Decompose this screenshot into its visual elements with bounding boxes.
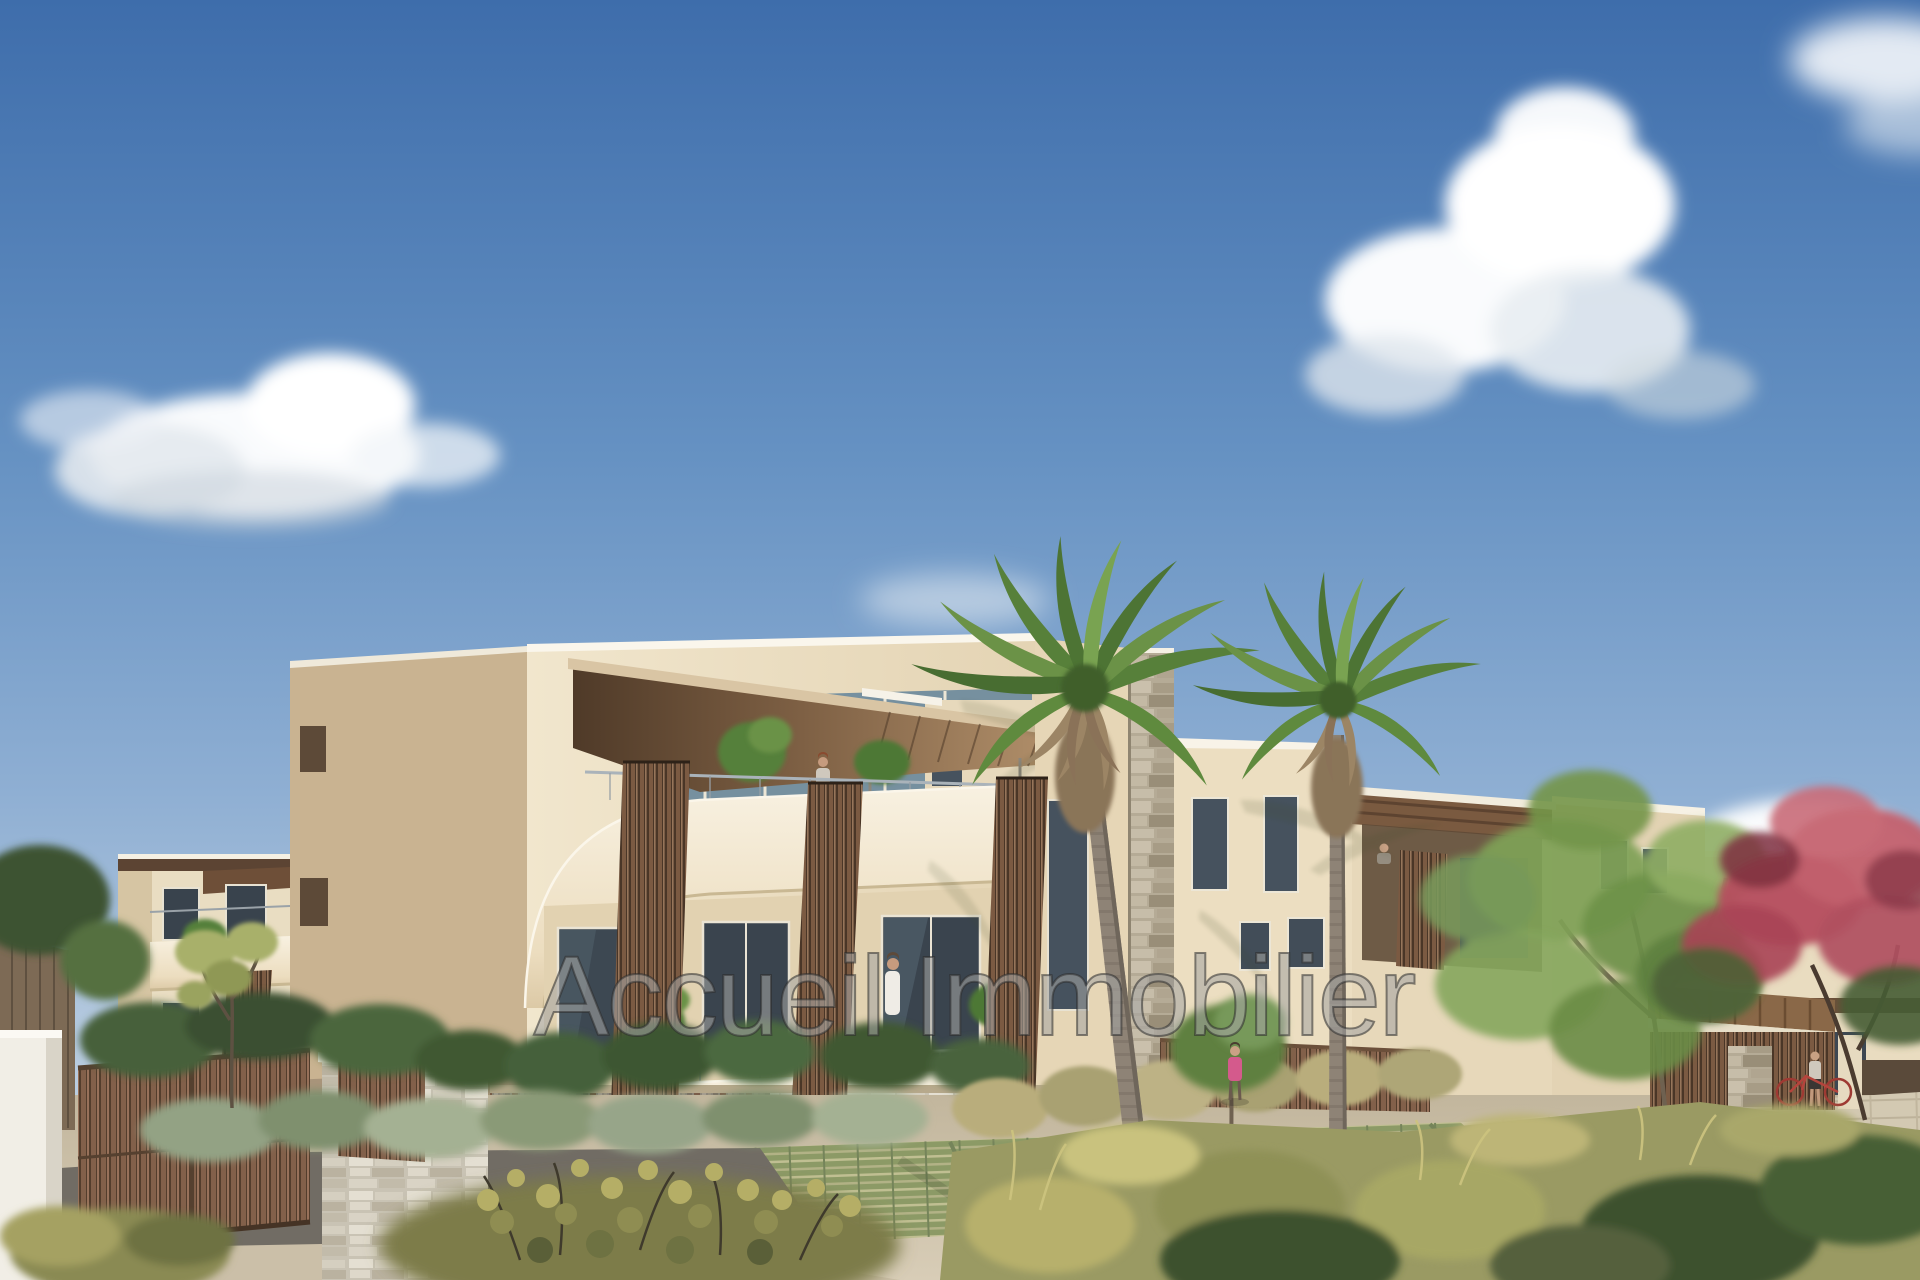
foreground-bush-far-left — [0, 1206, 235, 1280]
scene — [0, 0, 1920, 1280]
render-image: Accueil Immobilier — [0, 0, 1920, 1280]
